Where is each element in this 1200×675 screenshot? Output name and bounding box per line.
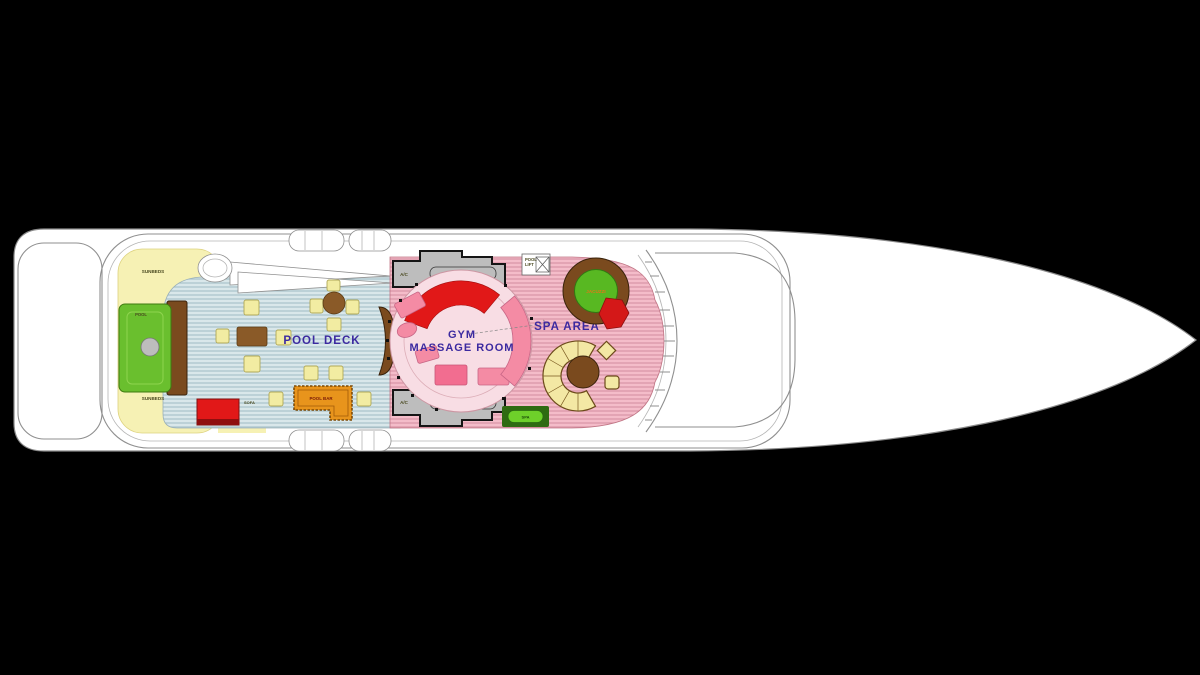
tender-outline bbox=[289, 230, 344, 251]
sunbeds-label-bottom: SUNBEDS bbox=[142, 396, 164, 401]
round-dining-table bbox=[323, 292, 345, 314]
tender-outline bbox=[289, 430, 344, 451]
yacht-deck-plan: POOL SUNBEDS SUNBEDS SOFA POOL BAR POOL … bbox=[0, 0, 1200, 675]
deck-chair bbox=[346, 300, 359, 314]
deck-chair bbox=[244, 300, 259, 315]
pool-lift-label-2: LIFT bbox=[525, 262, 534, 267]
massage-room-label: MASSAGE ROOM bbox=[410, 342, 515, 354]
deck-chair bbox=[329, 366, 343, 380]
deck-chair bbox=[310, 299, 323, 313]
deck-plan-canvas: POOL SUNBEDS SUNBEDS SOFA POOL BAR POOL … bbox=[0, 0, 1200, 675]
deck-chair bbox=[327, 280, 340, 291]
pool-bar-label: POOL BAR bbox=[309, 396, 333, 401]
pool-label: POOL bbox=[135, 312, 147, 317]
coffee-table bbox=[237, 327, 267, 346]
spa-bed-label: SPA bbox=[522, 415, 530, 420]
pool-fitting bbox=[141, 338, 159, 356]
stair-center-platform bbox=[567, 356, 599, 388]
deck-chair bbox=[327, 318, 341, 331]
jacuzzi-label: JACUZZI bbox=[586, 289, 605, 294]
gym-label: GYM bbox=[448, 329, 476, 341]
spa-bed: SPA bbox=[502, 406, 549, 427]
deck-chair bbox=[357, 392, 371, 406]
deck-chair bbox=[244, 356, 260, 372]
massage-table bbox=[435, 365, 467, 385]
deck-chair bbox=[304, 366, 318, 380]
tender-outline bbox=[349, 430, 391, 451]
sofa-label: SOFA bbox=[244, 400, 255, 405]
pool-lift: POOL LIFT bbox=[522, 254, 550, 275]
sofa-base bbox=[197, 419, 239, 425]
tender-outline bbox=[349, 230, 391, 251]
deck-chair bbox=[269, 392, 283, 406]
sunbeds-label-top: SUNBEDS bbox=[142, 269, 164, 274]
side-table-square bbox=[605, 376, 619, 389]
pool: POOL bbox=[119, 301, 187, 395]
pool-deck-label: POOL DECK bbox=[283, 335, 360, 347]
ac-label: A/C bbox=[400, 272, 409, 277]
deck-chair bbox=[216, 329, 229, 343]
ac-label: A/C bbox=[400, 400, 409, 405]
